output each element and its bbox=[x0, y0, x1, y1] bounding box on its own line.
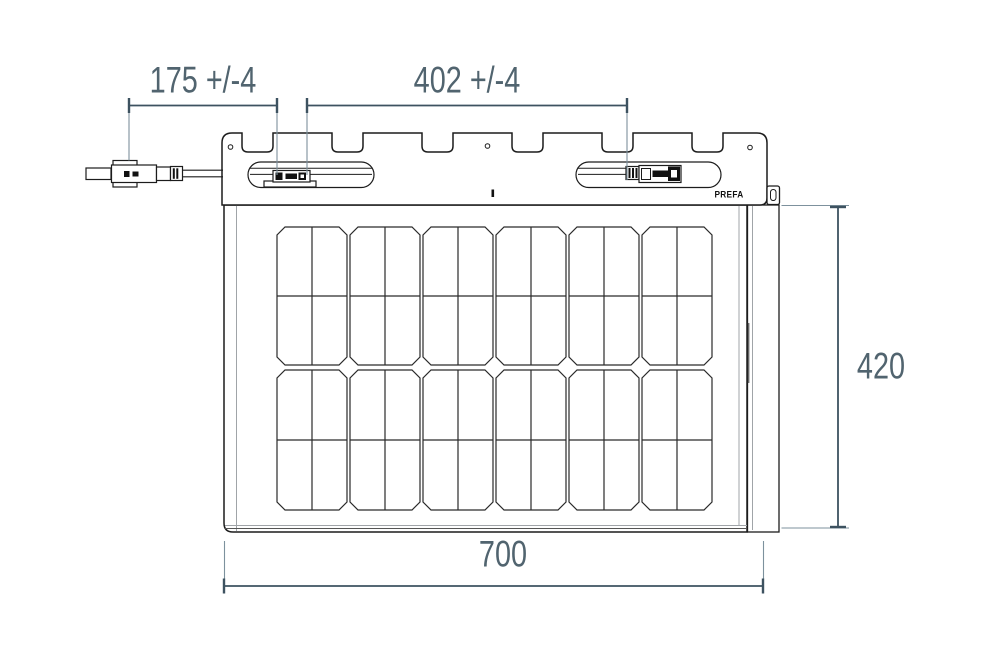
internal-connector bbox=[626, 166, 681, 183]
screw-hole-center bbox=[485, 144, 490, 149]
center-mark bbox=[492, 190, 495, 198]
header-outline bbox=[222, 133, 767, 205]
technical-drawing-canvas: 175 +/-4 402 +/-4 420 700 PREFA bbox=[0, 0, 992, 661]
dim-label-top-left: 175 +/-4 bbox=[150, 62, 257, 99]
screw-hole-left bbox=[228, 145, 233, 150]
panel-body bbox=[224, 205, 747, 532]
right-edge-strip bbox=[748, 205, 780, 532]
dim-label-right: 420 bbox=[857, 348, 905, 385]
solar-plug-connector bbox=[86, 161, 183, 188]
edge-tab bbox=[767, 186, 780, 205]
dimension-420 bbox=[782, 206, 850, 529]
cable-and-connector bbox=[86, 161, 223, 188]
dim-label-bottom: 700 bbox=[479, 536, 527, 573]
dim-label-top-right: 402 +/-4 bbox=[414, 62, 521, 99]
brand-logo: PREFA bbox=[715, 190, 744, 199]
screw-hole-right bbox=[748, 145, 753, 150]
panel-header bbox=[222, 133, 780, 205]
